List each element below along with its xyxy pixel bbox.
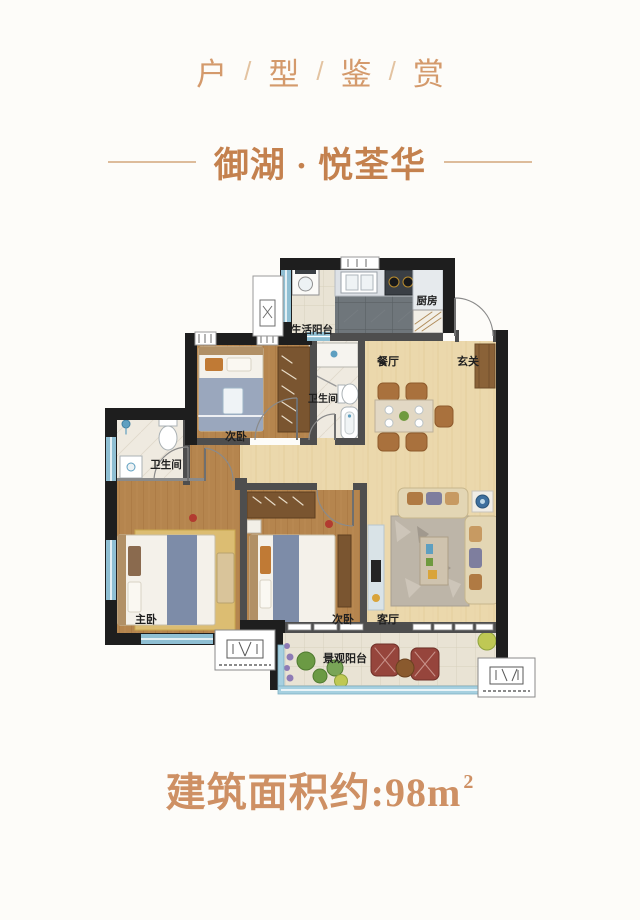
bedroom-2a-furniture [199,347,310,432]
plant-red [325,520,333,528]
ac-unit-bottom-right [478,658,535,697]
room-label-kitchen: 厨房 [417,294,438,307]
floorplan-container: 生活阳台 厨房 餐厅 玄关 卫生间 次卧 卫生间 主卧 次卧 客厅 景观阳台 [95,248,555,713]
ac-unit-top-left [253,276,283,336]
floorplan: 生活阳台 厨房 餐厅 玄关 卫生间 次卧 卫生间 主卧 次卧 客厅 景观阳台 [95,248,555,713]
room-label-dining: 餐厅 [376,354,399,368]
room-label-view-balcony: 景观阳台 [322,651,367,665]
stove [385,270,417,295]
table-plant [399,411,409,421]
sofa-right [465,516,499,604]
series-title-divider: / [389,56,396,87]
nightstand [247,520,261,533]
balcony-chair [371,644,399,676]
title-flourish-line-right [444,161,532,163]
plant [313,669,327,683]
balcony-table [396,659,414,677]
wardrobe [278,347,310,432]
entry-door [455,298,493,336]
wardrobe [247,492,315,518]
room-label-bathroom-1: 卫生间 [150,458,182,471]
series-title-char: 型 [268,49,299,94]
room-label-master-bedroom: 主卧 [135,612,157,626]
bed-mat [223,388,243,414]
area-note: 建筑面积约:98m2 [0,760,640,818]
ac-unit-bottom-left [215,630,275,670]
area-unit: m [427,770,461,815]
side-table [472,491,493,512]
balcony-chair [411,648,439,680]
title-flourish-line-left [108,161,196,163]
coffee-table [420,537,448,585]
room-label-bathroom-2: 卫生间 [308,392,338,405]
series-title-divider: / [316,56,323,87]
room-label-bedroom-2b: 次卧 [332,612,354,626]
plant-red [189,514,197,522]
fridge [413,310,443,333]
plant [297,652,315,670]
area-exponent: 2 [463,771,474,793]
project-title-row: 御湖 · 悦荃华 [0,136,640,188]
project-name: 御湖 · 悦荃华 [214,137,426,188]
room-label-living-room: 客厅 [376,612,399,626]
series-title: 户 / 型 / 鉴 / 赏 [0,48,640,94]
dresser [338,535,351,607]
room-label-entry: 玄关 [457,354,479,368]
tv [371,560,381,582]
area-prefix: 建筑面积约: [166,770,385,815]
area-value: 98 [385,770,427,815]
series-title-char: 赏 [413,49,444,94]
bench [217,553,234,603]
series-title-divider: / [244,56,251,87]
room-label-service-balcony: 生活阳台 [291,323,333,336]
master-bedroom-furniture [118,514,235,630]
series-title-char: 鉴 [341,49,372,94]
room-label-bedroom-2a: 次卧 [225,429,247,443]
plant [335,675,348,688]
series-title-char: 户 [196,49,227,94]
sofa-top [398,488,468,518]
decor [372,594,380,602]
plant [478,632,496,650]
